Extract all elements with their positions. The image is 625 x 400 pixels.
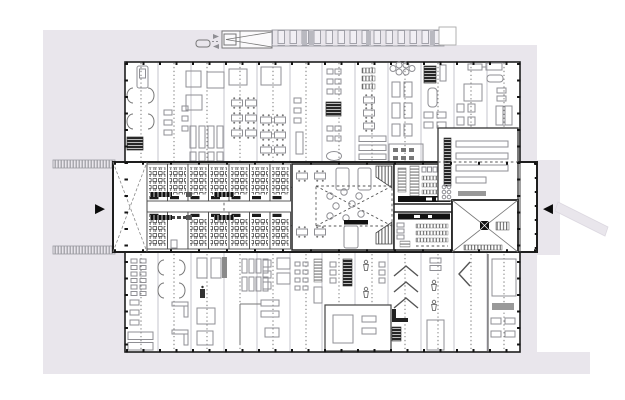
piano-icon	[326, 102, 341, 116]
bike-canopy	[272, 30, 444, 46]
floor-plan-drawing: ▶ ◀	[0, 0, 625, 400]
dock-shed	[439, 27, 456, 45]
kitchen-south	[394, 212, 452, 250]
gym-hall	[452, 200, 518, 252]
floor-plan-canvas: ▶ ◀	[0, 0, 625, 400]
piano-icon	[127, 137, 143, 150]
commons-hall	[292, 164, 394, 250]
west-entrance-arrow-icon: ▶	[95, 202, 105, 217]
stage-room	[325, 305, 391, 351]
truck-icon	[222, 31, 272, 48]
east-entrance-arrow-icon: ◀	[543, 202, 553, 217]
